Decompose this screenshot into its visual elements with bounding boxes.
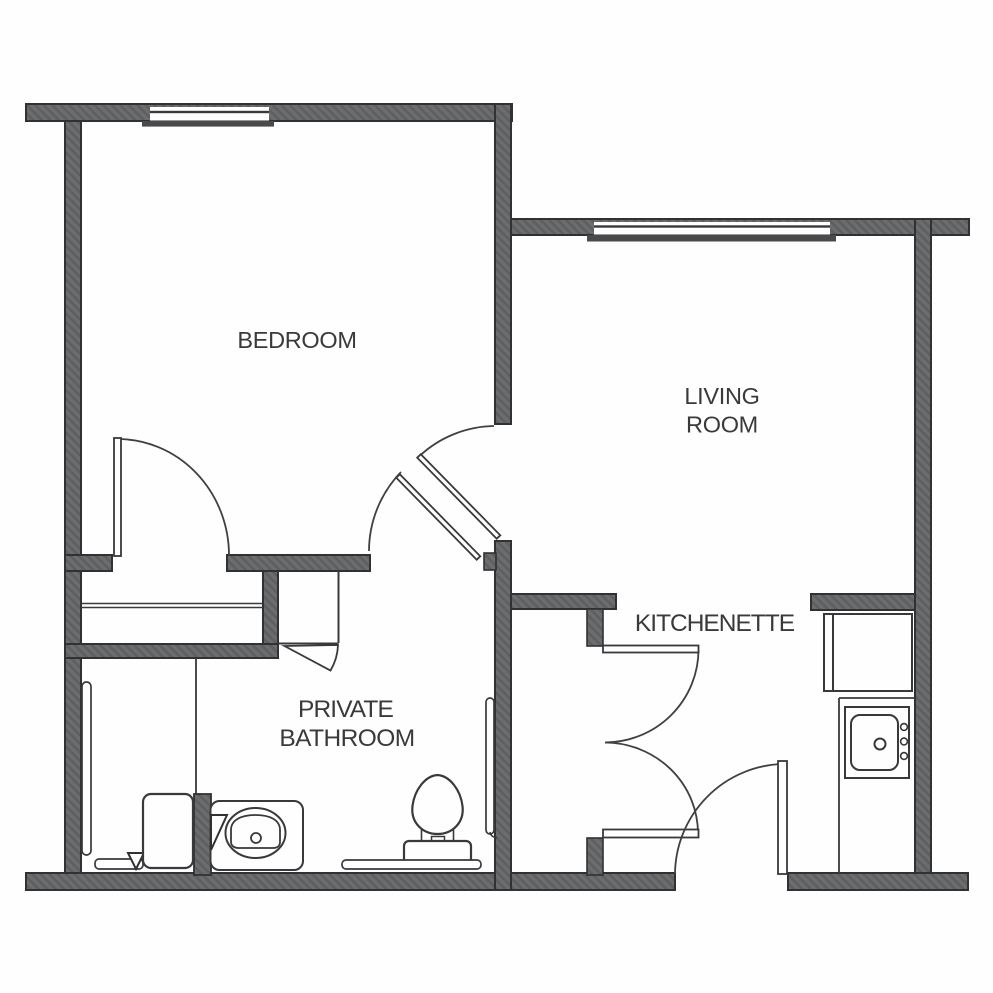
svg-text:LIVING: LIVING xyxy=(684,383,759,409)
svg-text:BEDROOM: BEDROOM xyxy=(237,327,356,353)
svg-text:KITCHENETTE: KITCHENETTE xyxy=(635,610,795,637)
svg-text:BATHROOM: BATHROOM xyxy=(279,725,414,752)
svg-text:ROOM: ROOM xyxy=(686,412,758,438)
svg-text:PRIVATE: PRIVATE xyxy=(298,696,393,723)
